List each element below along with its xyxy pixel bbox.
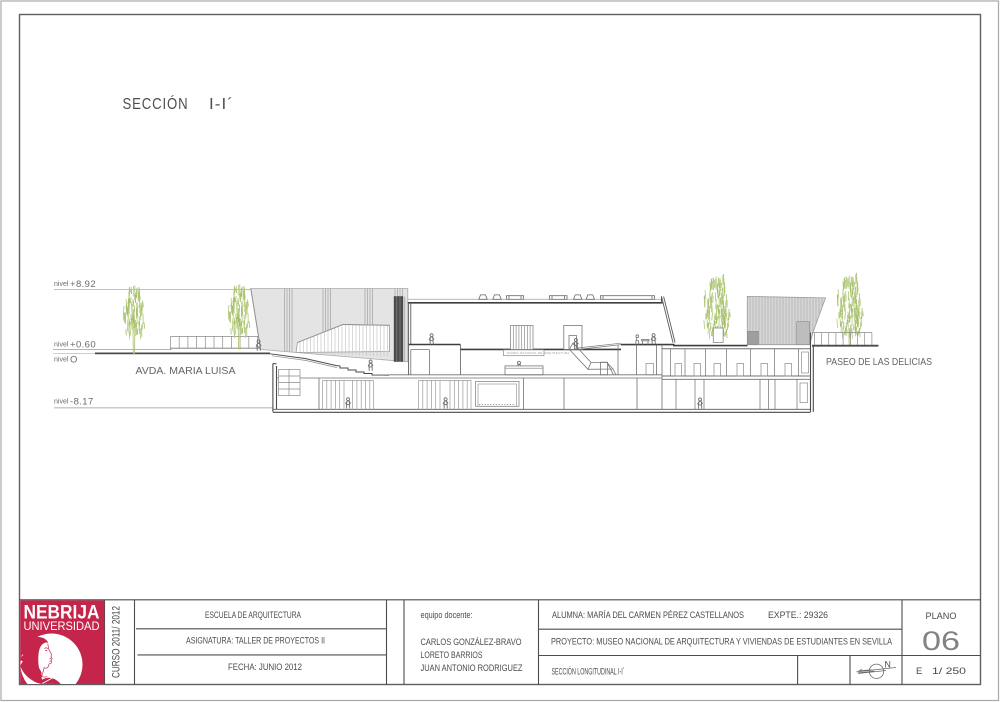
svg-text:MUSEO NACIONAL DE ARQUITECTURA: MUSEO NACIONAL DE ARQUITECTURA xyxy=(507,351,569,355)
svg-text:-8.17: -8.17 xyxy=(70,397,94,408)
svg-text:PLANO: PLANO xyxy=(926,611,957,622)
svg-text:CARLOS GONZÁLEZ-BRAVO: CARLOS GONZÁLEZ-BRAVO xyxy=(421,636,522,647)
svg-text:nivel: nivel xyxy=(54,357,69,364)
svg-text:ALUMNA: MARÍA DEL CARMEN PÉREZ: ALUMNA: MARÍA DEL CARMEN PÉREZ CASTELLAN… xyxy=(552,609,744,620)
svg-text:nivel: nivel xyxy=(54,342,69,349)
svg-text:E: E xyxy=(916,666,922,677)
svg-text:ESCUELA DE ARQUITECTURA: ESCUELA DE ARQUITECTURA xyxy=(205,610,301,621)
svg-text:nivel: nivel xyxy=(54,281,69,288)
svg-text:+0.60: +0.60 xyxy=(70,340,96,351)
svg-text:EXPTE.: 29326: EXPTE.: 29326 xyxy=(768,609,828,620)
svg-text:LORETO BARRIOS: LORETO BARRIOS xyxy=(421,649,483,660)
svg-text:ASIGNATURA: TALLER DE PROYECTO: ASIGNATURA: TALLER DE PROYECTOS II xyxy=(186,636,325,647)
svg-text:SECCIÓN: SECCIÓN xyxy=(123,96,189,113)
svg-text:06: 06 xyxy=(922,626,960,656)
svg-text:FECHA: JUNIO 2012: FECHA: JUNIO 2012 xyxy=(228,662,302,673)
svg-text:CURSO 2011/ 2012: CURSO 2011/ 2012 xyxy=(111,606,123,678)
svg-text:equipo docente:: equipo docente: xyxy=(421,610,473,620)
svg-text:UNIVERSIDAD: UNIVERSIDAD xyxy=(24,621,100,633)
svg-text:SECCIÓN LONGITUDINAL I-I´: SECCIÓN LONGITUDINAL I-I´ xyxy=(552,666,625,676)
svg-text:JUAN ANTONIO RODRIGUEZ: JUAN ANTONIO RODRIGUEZ xyxy=(421,662,523,673)
svg-text:O: O xyxy=(70,355,77,366)
svg-text:PASEO DE LAS DELICIAS: PASEO DE LAS DELICIAS xyxy=(826,356,932,368)
svg-text:nivel: nivel xyxy=(54,399,69,406)
svg-text:I-I´: I-I´ xyxy=(209,96,234,113)
svg-text:PROYECTO: MUSEO NACIONAL DE A: PROYECTO: MUSEO NACIONAL DE ARQUITECTURA… xyxy=(551,636,893,647)
svg-text:+8.92: +8.92 xyxy=(70,279,96,290)
svg-text:N: N xyxy=(885,660,891,670)
svg-text:1/ 250: 1/ 250 xyxy=(932,666,966,677)
svg-text:AVDA. MARIA LUISA: AVDA. MARIA LUISA xyxy=(136,365,236,377)
